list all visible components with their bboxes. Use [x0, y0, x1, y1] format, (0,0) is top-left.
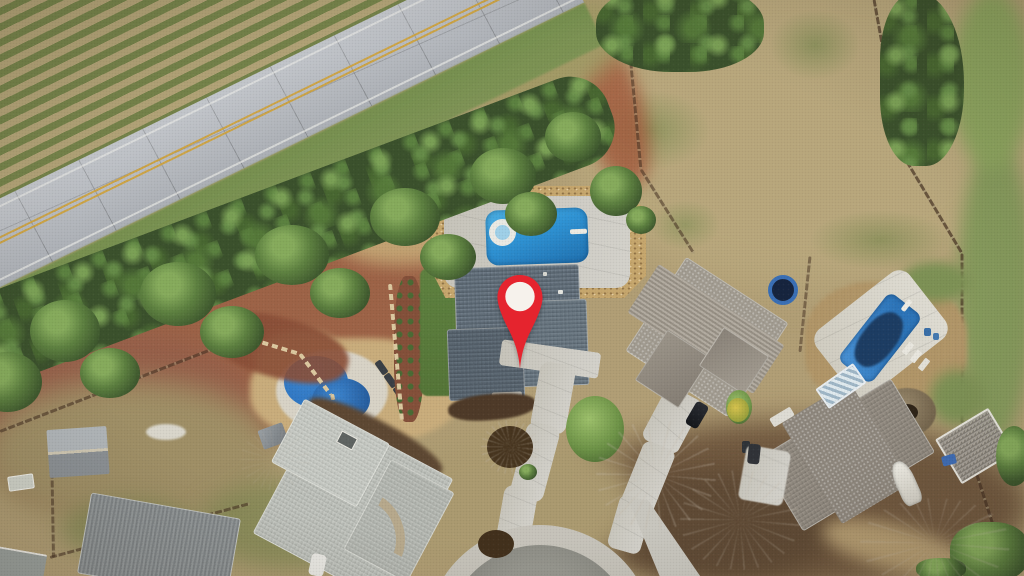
- parked-car-white: [308, 553, 327, 576]
- bush: [519, 464, 537, 480]
- corner-house-roof: [0, 546, 47, 576]
- pine-canopy: [200, 306, 264, 358]
- winter-trees: [680, 470, 800, 570]
- pool-chair: [924, 328, 931, 336]
- debris-pile: [146, 424, 186, 440]
- pine-canopy: [420, 234, 476, 280]
- pine-canopy: [370, 188, 440, 246]
- parked-vehicle: [747, 443, 761, 464]
- shrub-yellow: [727, 398, 749, 422]
- pine-canopy: [545, 112, 601, 162]
- bush: [996, 426, 1024, 486]
- pine-canopy: [310, 268, 370, 318]
- location-pin[interactable]: [496, 274, 544, 372]
- diving-board: [570, 229, 587, 235]
- landscape-island: [478, 530, 514, 558]
- pine-canopy: [30, 300, 100, 362]
- pine-canopy: [80, 348, 140, 398]
- aerial-map-view[interactable]: [0, 0, 1024, 576]
- landscape-island: [487, 426, 533, 468]
- trampoline: [768, 275, 798, 305]
- tree-clump: [596, 0, 764, 72]
- pine-canopy: [505, 192, 557, 236]
- hedge-row: [880, 0, 964, 166]
- roof-vent: [558, 290, 563, 294]
- pool-spa-water: [495, 225, 510, 240]
- garden-shed: [46, 426, 109, 478]
- winter-trees: [240, 430, 310, 490]
- pool-chair: [933, 333, 939, 340]
- tree: [626, 206, 656, 234]
